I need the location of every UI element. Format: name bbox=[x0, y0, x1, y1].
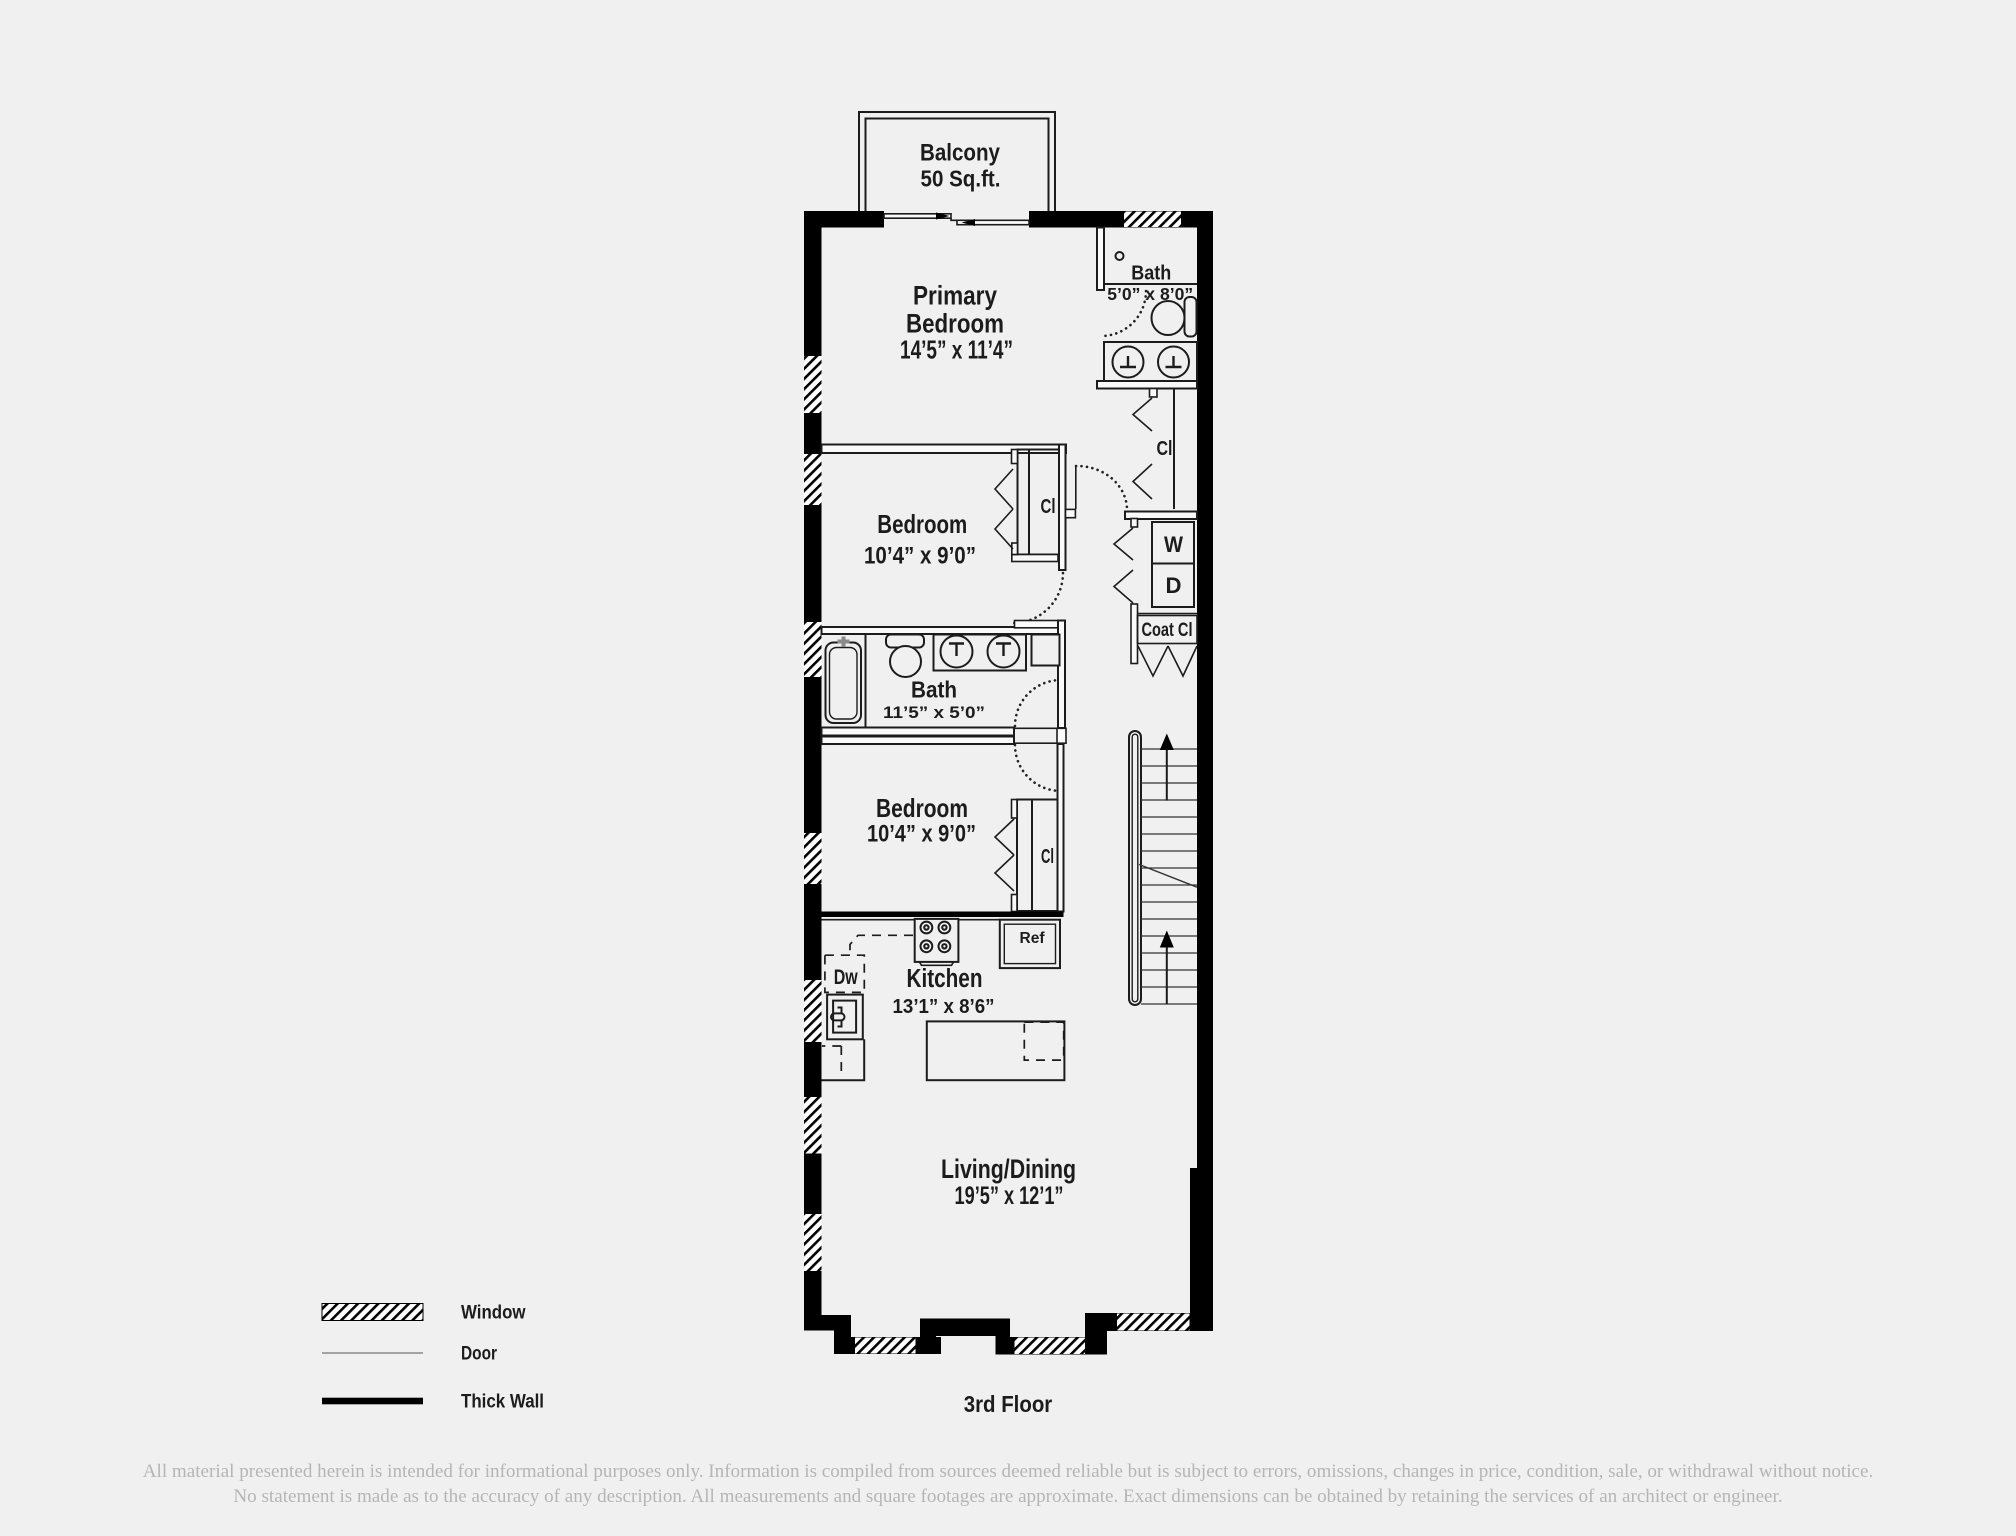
svg-text:Cl: Cl bbox=[1041, 496, 1056, 518]
svg-text:Living/Dining: Living/Dining bbox=[941, 1154, 1076, 1184]
svg-text:D: D bbox=[1166, 573, 1182, 598]
svg-text:19’5” x 12’1”: 19’5” x 12’1” bbox=[955, 1182, 1064, 1210]
svg-text:W: W bbox=[1164, 532, 1183, 557]
svg-text:14’5” x 11’4”: 14’5” x 11’4” bbox=[900, 335, 1013, 365]
svg-text:11’5” x 5’0”: 11’5” x 5’0” bbox=[883, 703, 985, 722]
svg-text:No statement is made as to the: No statement is made as to the accuracy … bbox=[233, 1486, 1782, 1507]
svg-text:Primary: Primary bbox=[913, 280, 997, 310]
svg-text:Kitchen: Kitchen bbox=[907, 965, 983, 993]
svg-text:10’4” x 9’0”: 10’4” x 9’0” bbox=[864, 543, 976, 570]
svg-text:Thick Wall: Thick Wall bbox=[461, 1391, 544, 1413]
svg-text:Dw: Dw bbox=[834, 966, 859, 989]
svg-text:Bedroom: Bedroom bbox=[877, 509, 967, 539]
svg-text:10’4” x 9’0”: 10’4” x 9’0” bbox=[867, 821, 976, 848]
svg-text:Bath: Bath bbox=[1131, 263, 1171, 285]
svg-text:Bath: Bath bbox=[911, 677, 957, 703]
svg-text:3rd Floor: 3rd Floor bbox=[964, 1391, 1053, 1417]
svg-text:All material presented herein: All material presented herein is intende… bbox=[143, 1461, 1874, 1482]
svg-text:Balcony: Balcony bbox=[920, 140, 1000, 167]
svg-text:Door: Door bbox=[461, 1343, 497, 1365]
svg-text:50 Sq.ft.: 50 Sq.ft. bbox=[921, 166, 1001, 192]
svg-text:Ref: Ref bbox=[1020, 930, 1046, 947]
svg-text:13’1” x 8’6”: 13’1” x 8’6” bbox=[893, 996, 995, 1018]
svg-text:Window: Window bbox=[461, 1302, 526, 1324]
svg-text:5’0” x 8’0”: 5’0” x 8’0” bbox=[1107, 284, 1193, 304]
svg-text:Cl: Cl bbox=[1157, 438, 1173, 460]
svg-text:Coat Cl: Coat Cl bbox=[1142, 620, 1193, 641]
svg-text:Cl: Cl bbox=[1041, 846, 1054, 868]
svg-text:Bedroom: Bedroom bbox=[876, 793, 968, 823]
